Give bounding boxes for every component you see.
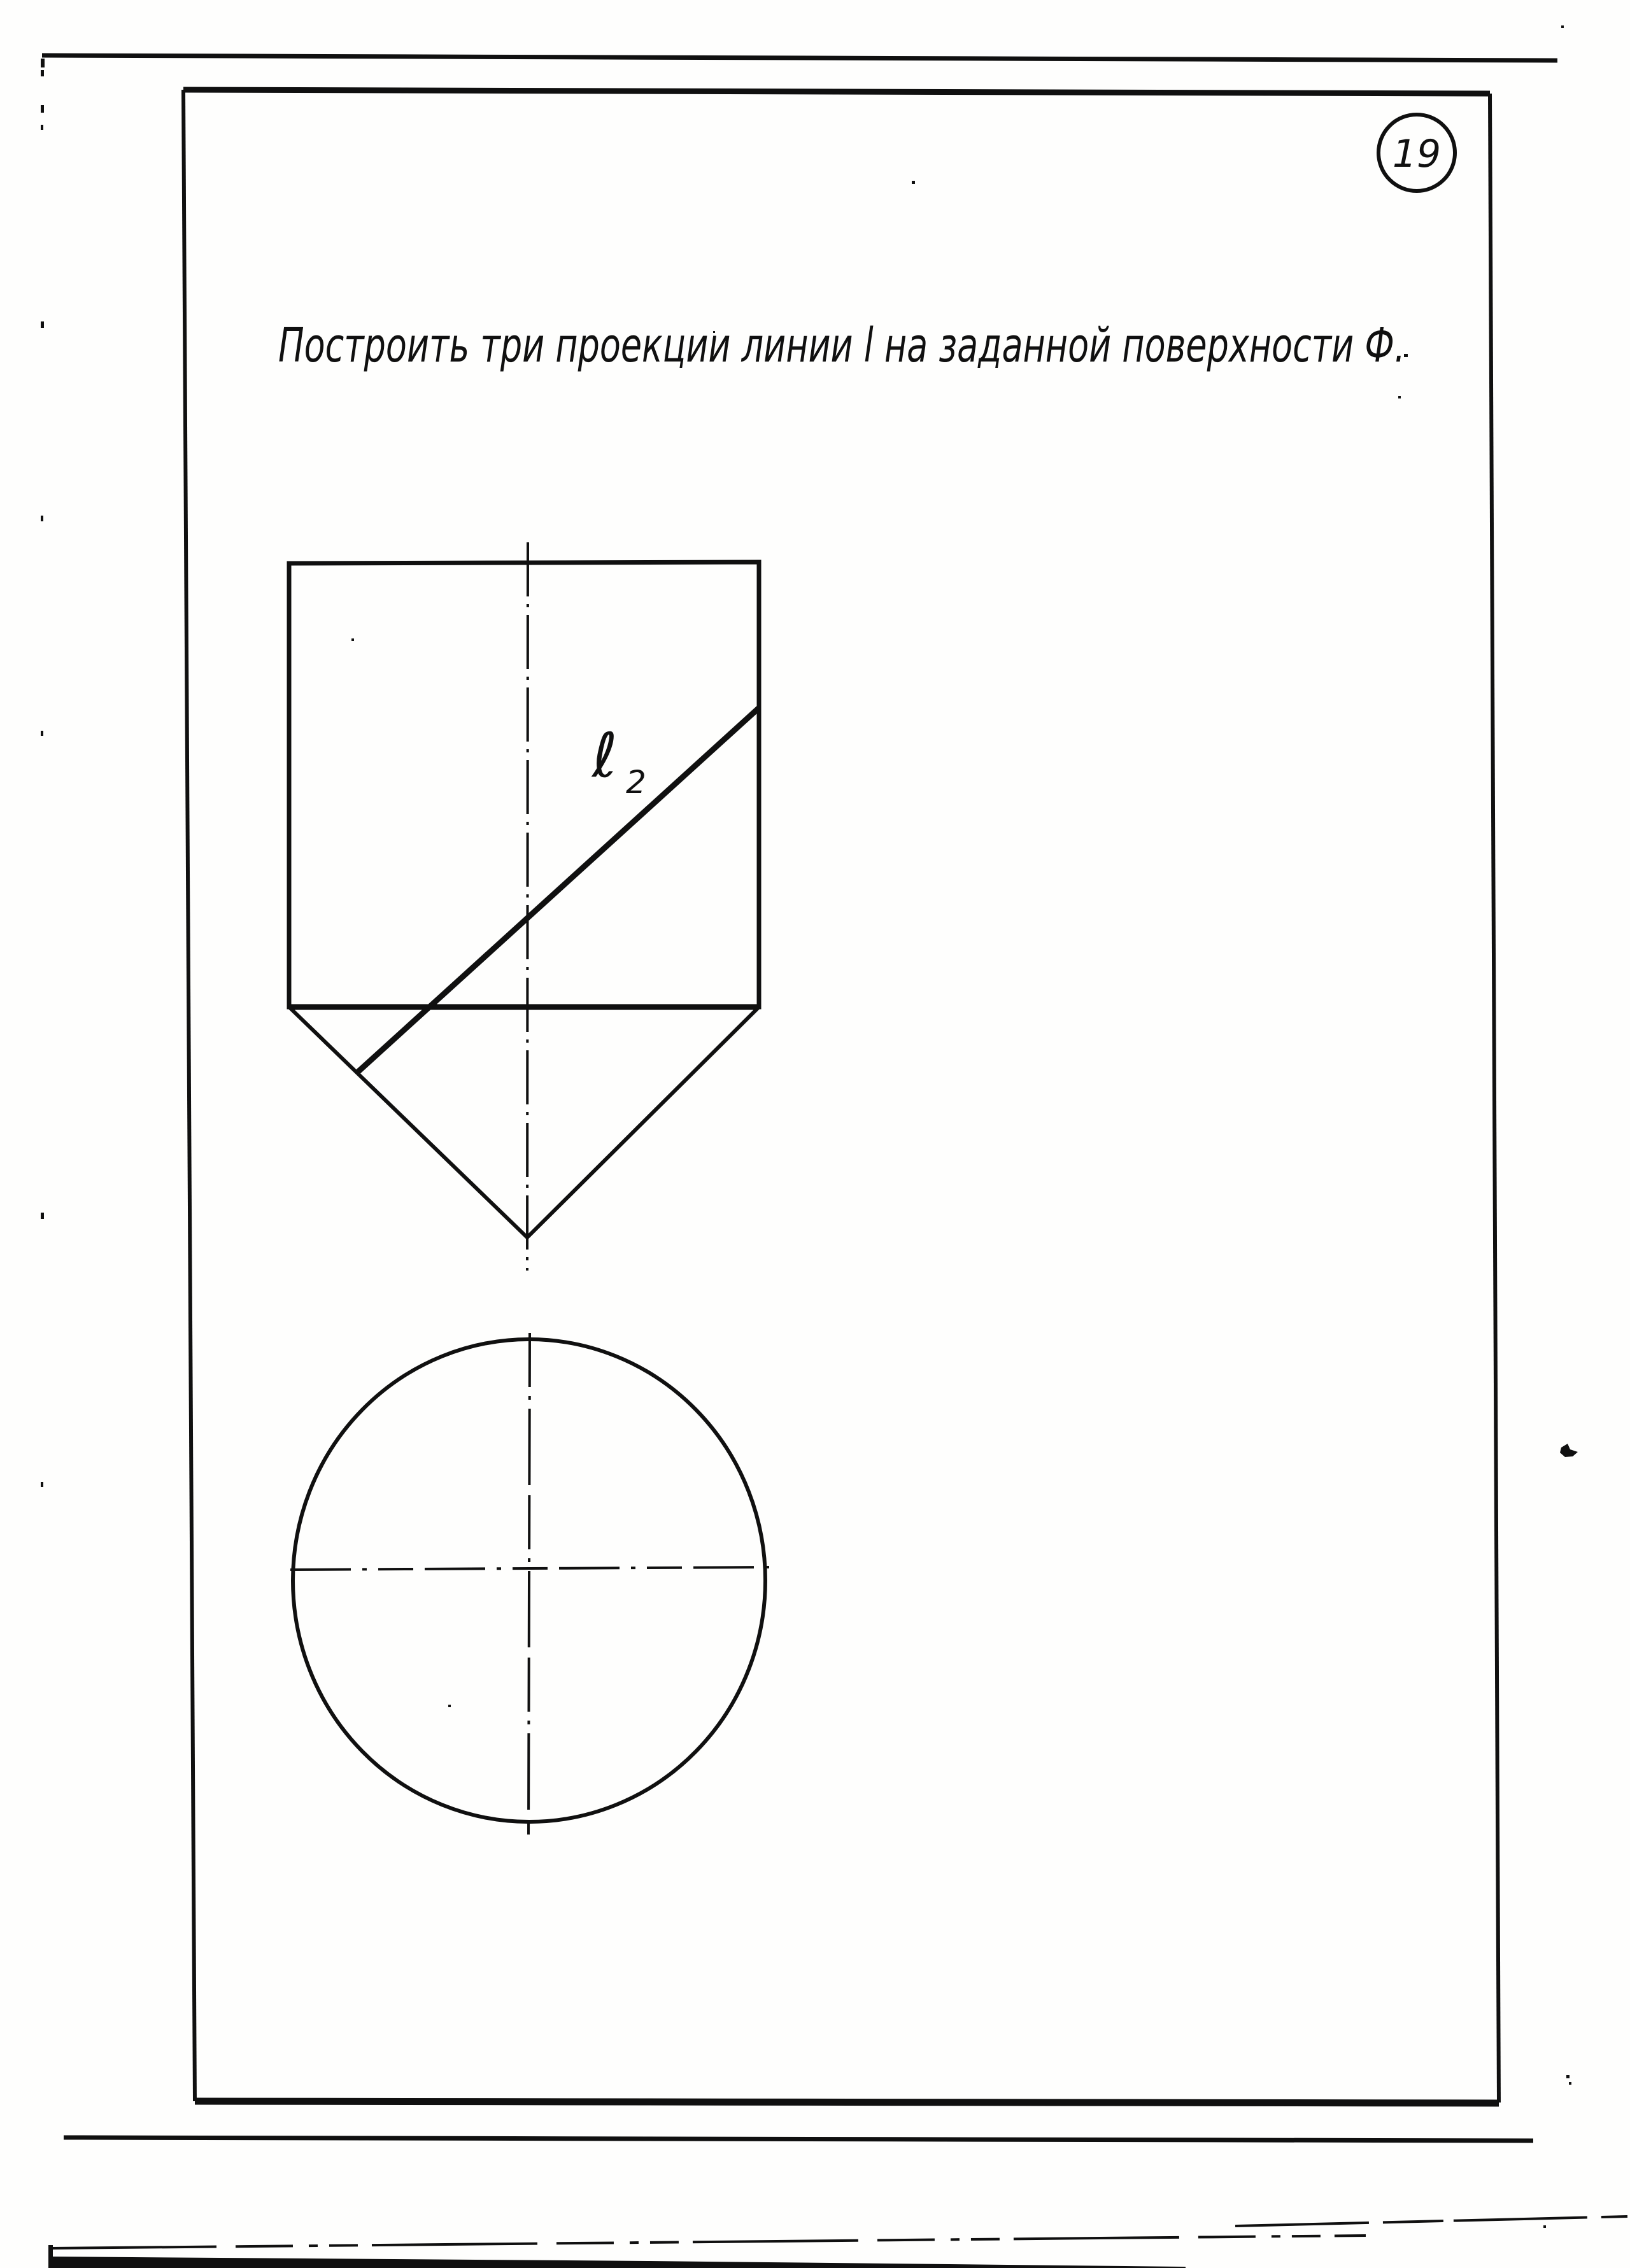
bottom-rule bbox=[64, 2138, 1533, 2141]
scan-edge-wedge bbox=[48, 2257, 1186, 2268]
top-view bbox=[290, 1333, 769, 1835]
page-number-badge: 19 bbox=[1378, 115, 1455, 191]
cylinder-outline bbox=[289, 562, 759, 1007]
ink-blot bbox=[1560, 1444, 1578, 1457]
label-l2: ℓ bbox=[591, 720, 618, 791]
line-l2 bbox=[358, 708, 759, 1072]
scan-edge-hook bbox=[48, 2245, 53, 2258]
top-rule bbox=[42, 55, 1557, 60]
cone-outline bbox=[289, 1007, 759, 1237]
horizontal-centerline bbox=[290, 1567, 769, 1570]
page-number: 19 bbox=[1393, 132, 1441, 176]
scanned-task-sheet: 19 Построить три проекции линии l на зад… bbox=[0, 0, 1630, 2268]
front-axis-centerline bbox=[527, 542, 528, 1271]
task-title: Построить три проекции линии l на заданн… bbox=[278, 318, 1405, 373]
scan-edge-line-lower bbox=[51, 2236, 1366, 2248]
front-view: ℓ 2 bbox=[289, 542, 759, 1271]
scan-edge-line-upper bbox=[1235, 2216, 1627, 2226]
vertical-centerline bbox=[528, 1333, 530, 1835]
drawing-canvas: 19 Построить три проекции линии l на зад… bbox=[0, 0, 1630, 2268]
label-l2-subscript: 2 bbox=[626, 764, 646, 801]
margin-dash-column bbox=[41, 59, 45, 1487]
